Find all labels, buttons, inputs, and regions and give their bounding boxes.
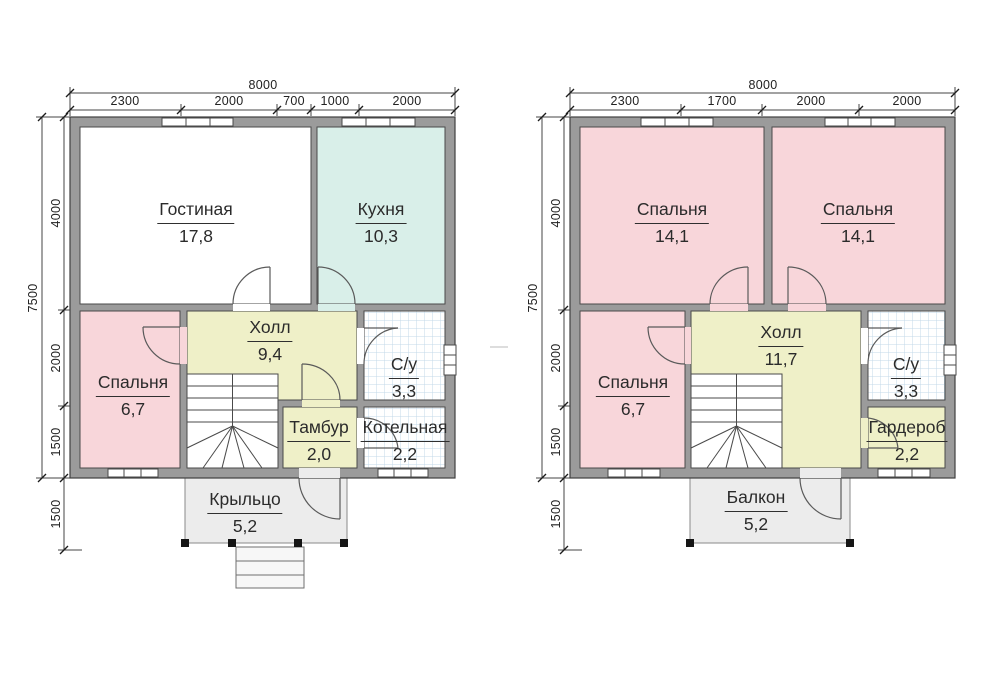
room-bedroom-2a: Спальня 14,1 (635, 197, 709, 250)
room-name: Спальня (821, 197, 895, 224)
window (162, 118, 233, 126)
room-name: Спальня (96, 370, 170, 397)
window (444, 345, 456, 375)
porch-post (340, 539, 348, 547)
room-bedroom-1: Спальня 6,7 (96, 370, 170, 423)
window (342, 118, 415, 126)
floorplan-canvas: Гостиная 17,8 Кухня 10,3 Холл 9,4 Спальн… (0, 0, 1000, 699)
room-area: 6,7 (96, 397, 170, 422)
dim-porch-depth: 1500 (49, 499, 63, 528)
window (378, 469, 428, 477)
window (878, 469, 930, 477)
stairs-floor2 (691, 374, 782, 468)
dim-segment: 700 (283, 94, 305, 108)
dim-total-height-2: 7500 (526, 283, 540, 312)
room-area: 10,3 (356, 224, 407, 249)
room-name: С/у (891, 352, 921, 379)
dim-total-width-1: 8000 (248, 78, 277, 92)
floor2-plan (536, 87, 959, 554)
dim-segment: 2000 (49, 343, 63, 372)
room-area: 14,1 (635, 224, 709, 249)
dim-segment: 2000 (549, 343, 563, 372)
window (641, 118, 713, 126)
room-name: Котельная (361, 415, 450, 442)
room-name: Гардероб (867, 415, 948, 442)
dim-segment: 1700 (707, 94, 736, 108)
room-name: Спальня (635, 197, 709, 224)
room-name: Спальня (596, 370, 670, 397)
room-area: 2,2 (361, 442, 450, 467)
room-bedroom-2c: Спальня 6,7 (596, 370, 670, 423)
room-area: 6,7 (596, 397, 670, 422)
window (108, 469, 158, 477)
dim-total-width-2: 8000 (748, 78, 777, 92)
room-name: Крыльцо (207, 487, 282, 514)
room-bedroom-2b: Спальня 14,1 (821, 197, 895, 250)
room-area: 14,1 (821, 224, 895, 249)
dim-segment: 2000 (892, 94, 921, 108)
room-living: Гостиная 17,8 (157, 197, 234, 250)
dim-segment: 2300 (110, 94, 139, 108)
stairs-floor1 (187, 374, 278, 468)
room-boiler: Котельная 2,2 (361, 415, 450, 468)
dim-segment: 2000 (796, 94, 825, 108)
dim-total-height-1: 7500 (26, 283, 40, 312)
room-area: 3,3 (389, 379, 419, 404)
room-area: 5,2 (207, 514, 282, 539)
room-area: 17,8 (157, 224, 234, 249)
room-name: Тамбур (287, 415, 350, 442)
room-area: 2,2 (867, 442, 948, 467)
dim-segment: 2000 (392, 94, 421, 108)
room-area: 3,3 (891, 379, 921, 404)
room-name: Балкон (725, 485, 788, 512)
porch-post (181, 539, 189, 547)
porch-steps (236, 547, 304, 588)
room-balcony: Балкон 5,2 (725, 485, 788, 538)
room-name: С/у (389, 352, 419, 379)
room-area: 2,0 (287, 442, 350, 467)
dim-segment: 1000 (320, 94, 349, 108)
window (944, 345, 956, 375)
room-area: 5,2 (725, 512, 788, 537)
window (825, 118, 895, 126)
porch-post (228, 539, 236, 547)
room-name: Кухня (356, 197, 407, 224)
window (608, 469, 660, 477)
room-hall-1: Холл 9,4 (247, 315, 292, 368)
room-name: Гостиная (157, 197, 234, 224)
room-name: Холл (247, 315, 292, 342)
dim-segment: 1500 (549, 427, 563, 456)
dim-segment: 4000 (549, 198, 563, 227)
balcony-post (846, 539, 854, 547)
floorplan-drawing (0, 0, 1000, 699)
room-porch: Крыльцо 5,2 (207, 487, 282, 540)
dim-segment: 2000 (214, 94, 243, 108)
dim-balcony-depth: 1500 (549, 499, 563, 528)
balcony-post (686, 539, 694, 547)
room-area: 11,7 (758, 347, 803, 372)
room-area: 9,4 (247, 342, 292, 367)
room-wardrobe: Гардероб 2,2 (867, 415, 948, 468)
dim-segment: 4000 (49, 198, 63, 227)
room-wc-2: С/у 3,3 (891, 352, 921, 405)
room-kitchen: Кухня 10,3 (356, 197, 407, 250)
room-tambour: Тамбур 2,0 (287, 415, 350, 468)
dim-segment: 2300 (610, 94, 639, 108)
porch-post (294, 539, 302, 547)
room-wc-1: С/у 3,3 (389, 352, 419, 405)
dim-segment: 1500 (49, 427, 63, 456)
room-hall-2: Холл 11,7 (758, 320, 803, 373)
room-name: Холл (758, 320, 803, 347)
